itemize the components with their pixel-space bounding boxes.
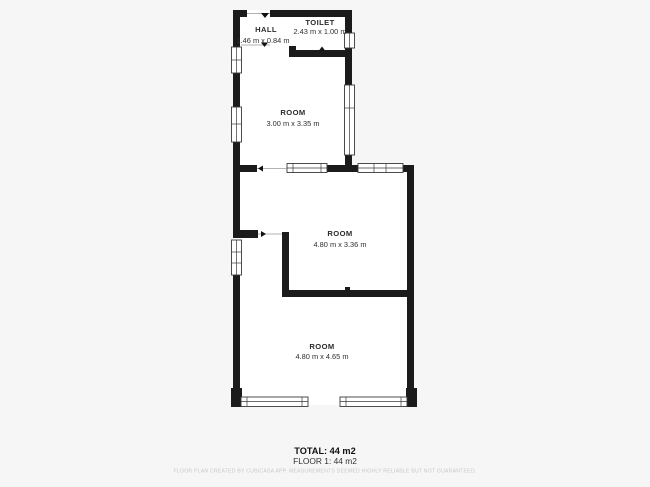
floor-plan-canvas: HALL 1.46 m x 0.84 m TOILET 2.43 m x 1.0… — [0, 0, 650, 487]
room-bottom-dimensions: 4.80 m x 4.65 m — [296, 352, 349, 361]
floor-area-text: FLOOR 1: 44 m2 — [293, 456, 357, 466]
room-top-dimensions: 3.00 m x 3.35 m — [267, 119, 320, 128]
window-icon — [241, 397, 308, 407]
room-mid-name: ROOM — [327, 229, 352, 238]
hall-dimensions: 1.46 m x 0.84 m — [237, 36, 290, 45]
window-icon — [232, 240, 242, 275]
summary: TOTAL: 44 m2 FLOOR 1: 44 m2 FLOOR PLAN C… — [174, 446, 477, 475]
window-icon — [287, 164, 327, 173]
hall-name: HALL — [255, 25, 277, 34]
disclaimer-text: FLOOR PLAN CREATED BY CUBICASA APP. MEAS… — [174, 469, 477, 475]
window-icon — [340, 397, 407, 407]
room-top-name: ROOM — [280, 108, 305, 117]
room-bottom-name: ROOM — [309, 342, 334, 351]
toilet-dimensions: 2.43 m x 1.00 m — [294, 27, 347, 36]
total-area-text: TOTAL: 44 m2 — [294, 446, 355, 456]
window-icon — [358, 164, 403, 173]
toilet-name: TOILET — [305, 18, 334, 27]
room-mid-dimensions: 4.80 m x 3.36 m — [314, 240, 367, 249]
window-icon — [232, 107, 242, 142]
window-icon — [345, 85, 355, 155]
window-icon — [232, 47, 242, 73]
floor-plan-page: HALL 1.46 m x 0.84 m TOILET 2.43 m x 1.0… — [0, 0, 650, 487]
